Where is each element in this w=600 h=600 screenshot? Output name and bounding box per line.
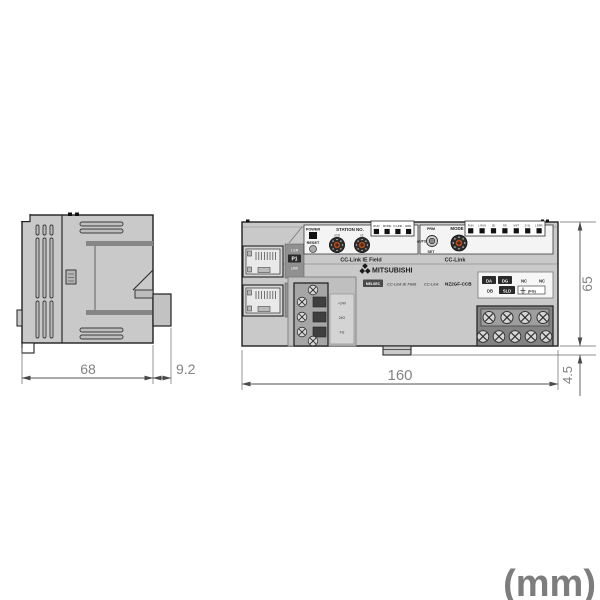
cclink-caption: CC-Link bbox=[445, 258, 466, 264]
led-label: MST bbox=[514, 223, 520, 227]
cclink-logo: CC-Link bbox=[424, 282, 439, 287]
din-hook bbox=[17, 310, 22, 326]
terminal-screw bbox=[537, 312, 549, 324]
side-top-tab bbox=[68, 213, 72, 217]
unit-label: (mm) bbox=[503, 563, 596, 600]
led bbox=[491, 228, 496, 233]
led-label: RUN bbox=[373, 224, 379, 228]
brand-name: MITSUBISHI bbox=[372, 268, 413, 275]
led-label: RD bbox=[503, 223, 507, 227]
led bbox=[385, 229, 390, 234]
led bbox=[514, 228, 519, 233]
reset-button bbox=[310, 246, 317, 253]
terminal-screw bbox=[509, 331, 521, 343]
power-screw bbox=[297, 327, 307, 337]
dim-160-label: 160 bbox=[387, 367, 412, 384]
power-terminal-label: 24G bbox=[339, 316, 346, 320]
dim-4-5-label: 4.5 bbox=[560, 366, 575, 384]
cclink-ie-field-caption: CC-Link IE Field bbox=[340, 258, 381, 264]
x10-label: x10 bbox=[334, 234, 340, 238]
side-body bbox=[22, 215, 153, 343]
dimension-drawing-page: L ER P1 LINK L ER P2 LINK POWER RESET ST… bbox=[0, 0, 600, 600]
power-led bbox=[309, 232, 317, 239]
power-label: POWER bbox=[306, 228, 321, 232]
terminal-nc-label: NC bbox=[521, 279, 527, 284]
melsec-badge-label: MELSEC bbox=[366, 282, 381, 286]
led-label: L ERR. bbox=[535, 223, 544, 227]
terminal-fg-label: (FG) bbox=[528, 290, 537, 294]
terminal-sld-label: SLD bbox=[503, 288, 511, 293]
led bbox=[406, 229, 411, 234]
led bbox=[395, 229, 400, 234]
ie-field-led-block: RUN MODE D LINK ERR. bbox=[371, 221, 414, 236]
terminal-dg-label: DG bbox=[502, 278, 508, 283]
din-bottom-hook bbox=[22, 343, 34, 353]
led-label: MODE bbox=[383, 224, 392, 228]
vent-slits bbox=[36, 225, 53, 338]
mode-label: MODE bbox=[450, 226, 463, 231]
module-dimension-drawing: L ER P1 LINK L ER P2 LINK POWER RESET ST… bbox=[0, 0, 600, 600]
p1-link-label: LINK bbox=[291, 267, 299, 271]
terminal-screw bbox=[540, 331, 552, 343]
power-screw bbox=[308, 336, 318, 346]
led bbox=[537, 228, 542, 233]
station-x10-rotary-switch bbox=[329, 237, 344, 252]
side-view bbox=[17, 213, 171, 354]
mode-rotary-switch bbox=[451, 235, 467, 251]
led-label: SD bbox=[492, 223, 496, 227]
x1-label: x1 bbox=[360, 234, 364, 238]
p1-label: P1 bbox=[291, 257, 297, 263]
terminal-da-label: DA bbox=[486, 278, 492, 283]
power-screw bbox=[297, 312, 307, 322]
led-label: L RUN bbox=[478, 223, 486, 227]
power-connector: +24V 24G FG bbox=[288, 277, 356, 346]
model-number: NZ2GF-CCB bbox=[445, 282, 472, 287]
power-terminal-label: FG bbox=[340, 331, 345, 335]
side-top-tab bbox=[75, 213, 79, 217]
side-protruding-connector bbox=[153, 294, 171, 326]
port-p1-labels: L ER P1 LINK bbox=[285, 244, 304, 278]
dim-68-label: 68 bbox=[80, 361, 96, 377]
reset-label: RESET bbox=[307, 241, 320, 245]
front-view: L ER P1 LINK L ER P2 LINK POWER RESET ST… bbox=[242, 220, 558, 356]
led bbox=[525, 228, 530, 233]
ethernet-port-p2 bbox=[243, 285, 283, 316]
power-screw bbox=[308, 285, 318, 295]
led-label: D LINK bbox=[393, 224, 402, 228]
terminal-screw bbox=[493, 331, 505, 343]
power-screw bbox=[297, 297, 307, 307]
side-dark-bar bbox=[86, 241, 153, 246]
terminal-screw bbox=[483, 312, 495, 324]
din-lock-lever bbox=[66, 270, 76, 284]
terminal-screw bbox=[519, 312, 531, 324]
led bbox=[468, 228, 473, 233]
terminal-db-label: DB bbox=[487, 289, 493, 294]
station-no-label: STATION NO. bbox=[336, 227, 364, 232]
auto-label: AUTO bbox=[417, 240, 427, 244]
dim-9-2-label: 9.2 bbox=[176, 361, 196, 377]
din-rail-tab bbox=[383, 346, 411, 355]
terminal-label-plate: DA DG NC NC DB SLD (FG) bbox=[478, 272, 553, 298]
terminal-block bbox=[477, 306, 553, 346]
led-label: ERR. bbox=[405, 224, 412, 228]
station-x1-rotary-switch bbox=[354, 237, 369, 252]
led bbox=[502, 228, 507, 233]
corner-notch bbox=[21, 214, 30, 221]
dim-65-label: 65 bbox=[579, 276, 595, 292]
prm-label: PRM bbox=[427, 227, 435, 231]
cclink-led-block: RUN L RUN SD RD MST D SL L ERR. bbox=[465, 221, 545, 236]
terminal-screw bbox=[501, 312, 513, 324]
power-terminal-label: +24V bbox=[338, 302, 347, 306]
terminal-screw bbox=[477, 331, 489, 343]
led bbox=[374, 229, 379, 234]
p1-ler-label: L ER bbox=[291, 249, 299, 253]
side-dark-bar bbox=[86, 310, 153, 315]
ethernet-port-p1 bbox=[243, 246, 283, 277]
led bbox=[480, 228, 485, 233]
terminal-nc-label: NC bbox=[539, 279, 545, 284]
prm-set-toggle-switch bbox=[427, 236, 438, 247]
led-label: RUN bbox=[468, 223, 474, 227]
terminal-screw bbox=[525, 331, 537, 343]
set-label: SET bbox=[428, 250, 436, 254]
cclink-ie-field-logo: CC-Link IE Field bbox=[387, 282, 417, 287]
led-label: D SL bbox=[525, 223, 531, 227]
